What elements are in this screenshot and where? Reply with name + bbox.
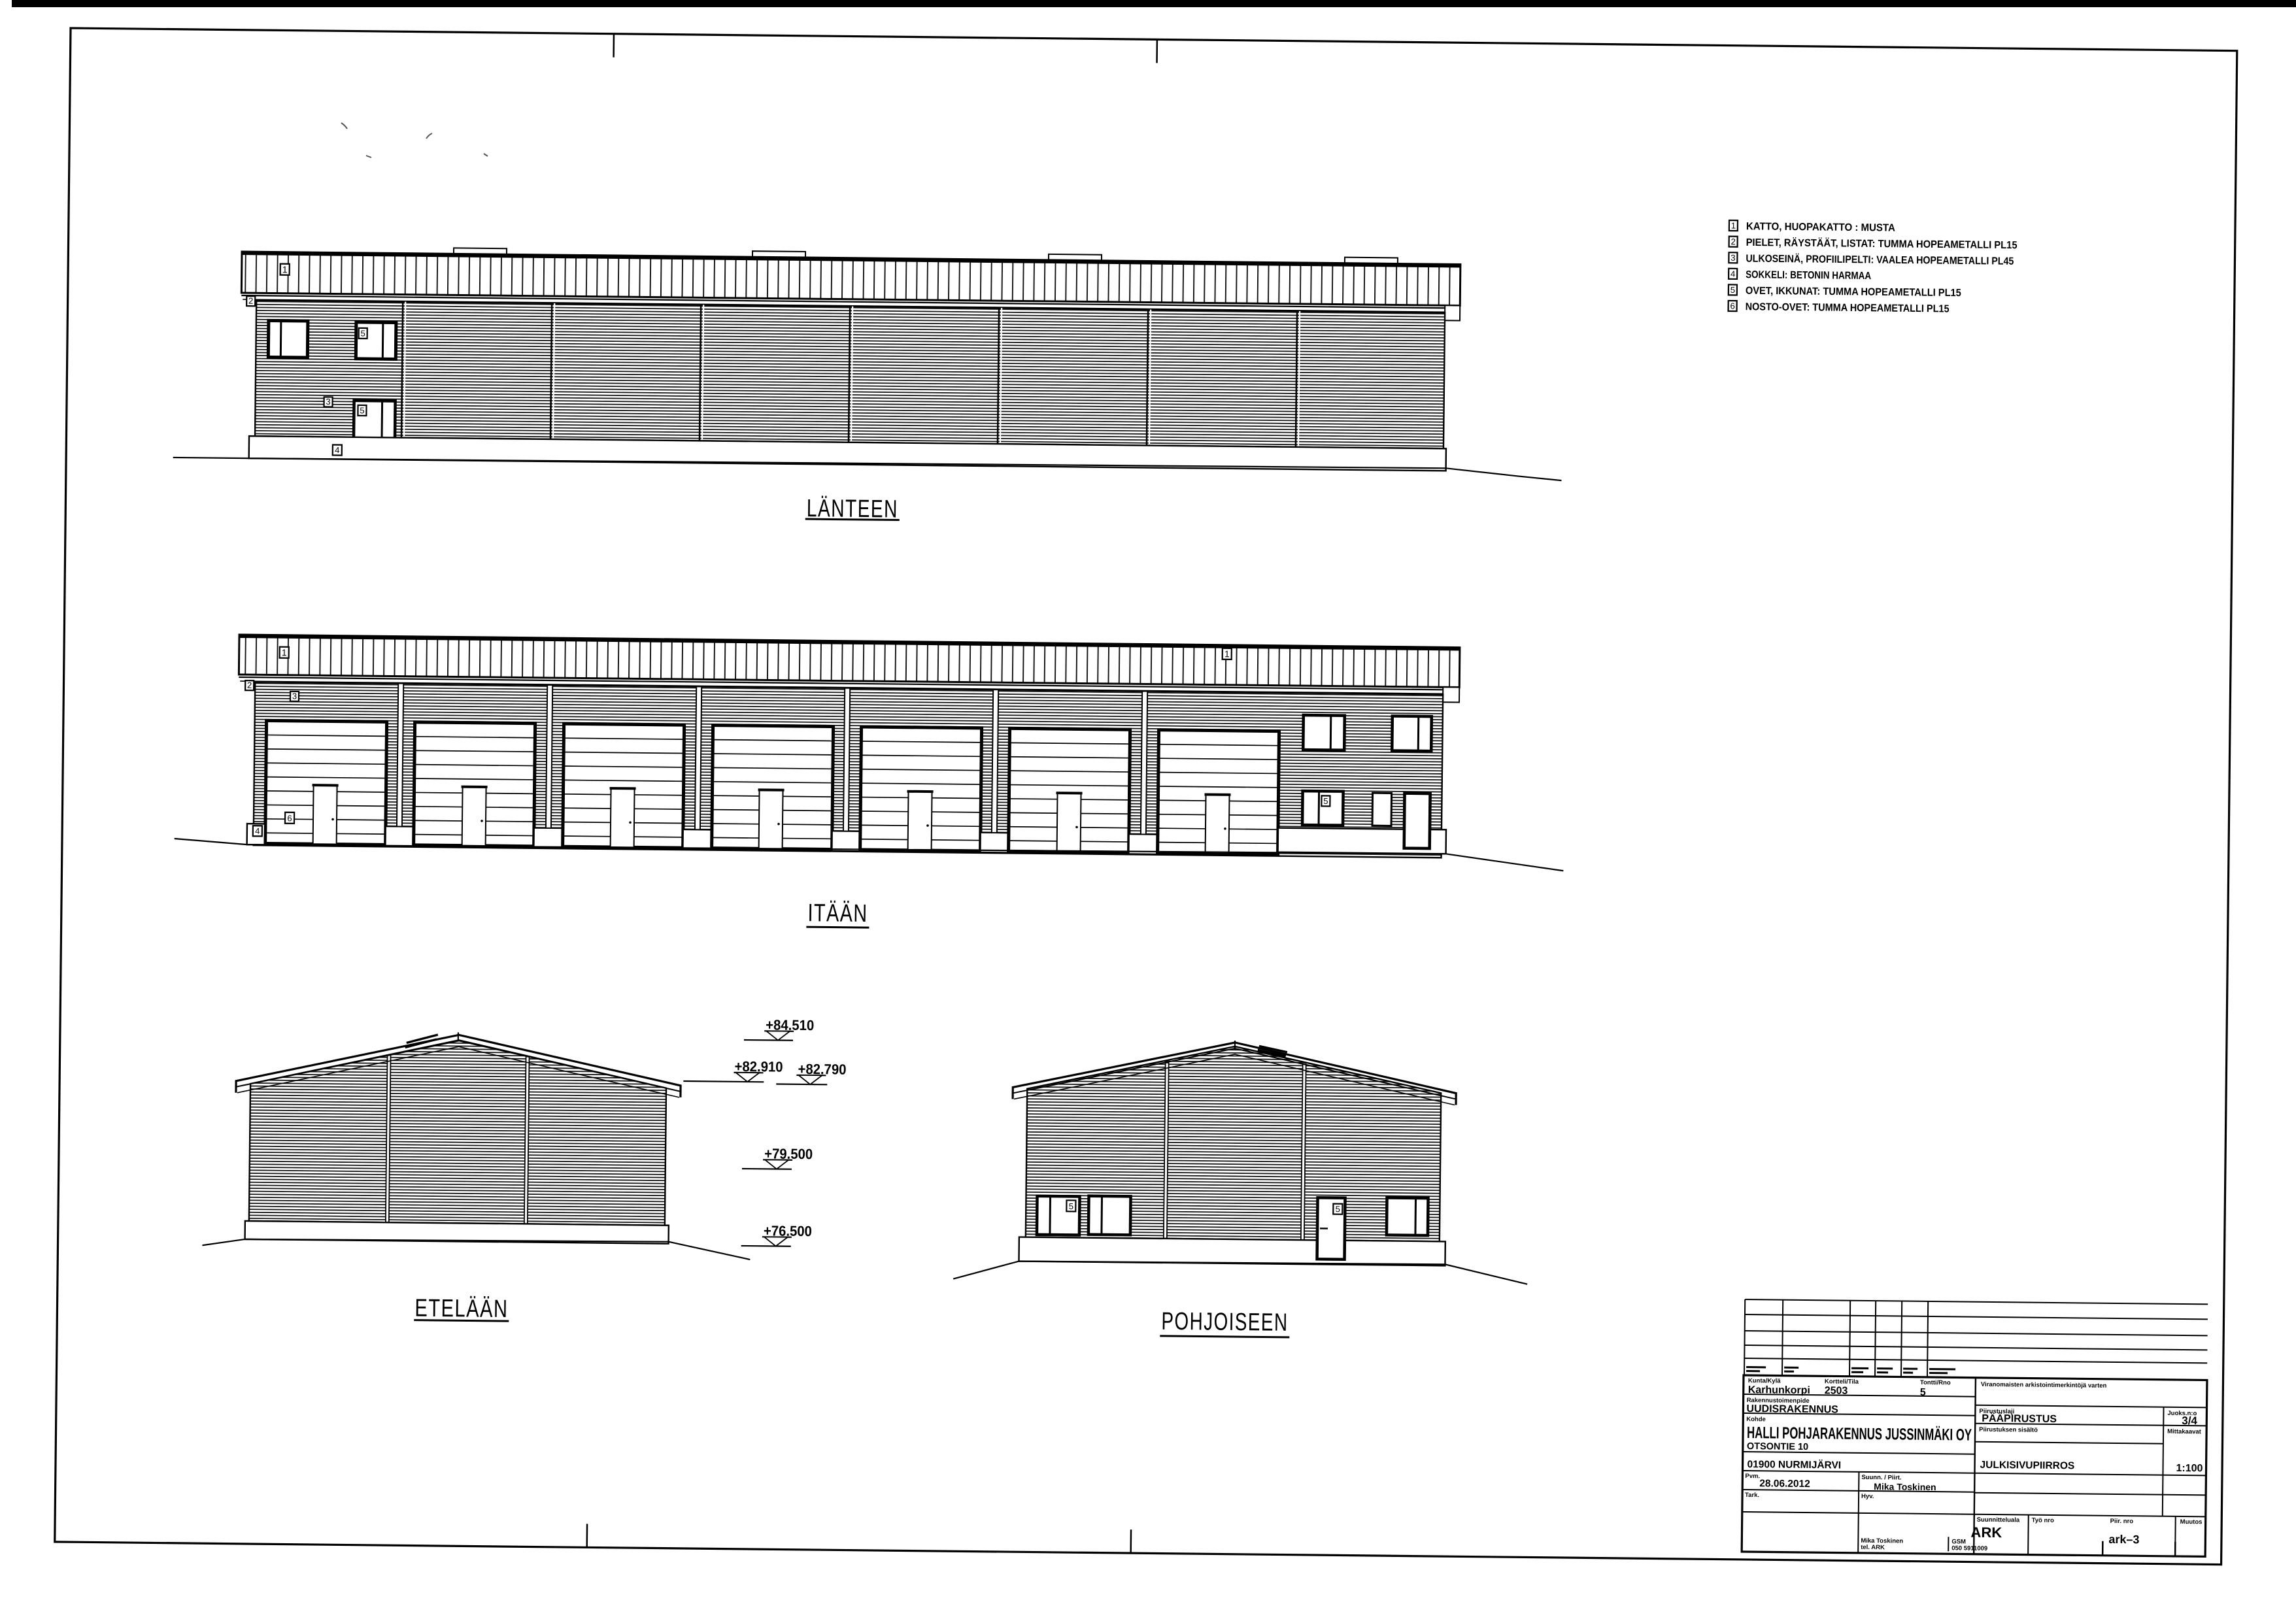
svg-text:Suunnitteluala: Suunnitteluala (1977, 1516, 2020, 1524)
svg-text:Muutos: Muutos (2180, 1518, 2203, 1526)
svg-text:5: 5 (1730, 285, 1735, 295)
svg-text:Karhunkorpi: Karhunkorpi (1748, 1384, 1810, 1396)
svg-text:Piirustuksen sisältö: Piirustuksen sisältö (1979, 1426, 2038, 1434)
svg-text:SOKKELI: BETONIN HARMAA: SOKKELI: BETONIN HARMAA (1746, 269, 1872, 282)
svg-text:Tark.: Tark. (1745, 1492, 1759, 1499)
svg-text:1: 1 (282, 647, 287, 658)
svg-text:ETELÄÄN: ETELÄÄN (414, 1295, 508, 1323)
svg-text:28.06.2012: 28.06.2012 (1759, 1478, 1810, 1490)
svg-text:OVET, IKKUNAT: TUMMA HOPEAMETA: OVET, IKKUNAT: TUMMA HOPEAMETALLI PL15 (1746, 286, 1961, 299)
svg-text:1: 1 (1731, 221, 1736, 231)
svg-text:2503: 2503 (1825, 1385, 1848, 1396)
svg-text:3: 3 (326, 397, 330, 407)
svg-text:Suunn. / Piirt.: Suunn. / Piirt. (1861, 1474, 1901, 1482)
svg-text:Mittakaavat: Mittakaavat (2167, 1428, 2202, 1436)
svg-text:2: 2 (1730, 237, 1735, 246)
svg-text:tel. ARK: tel. ARK (1861, 1544, 1885, 1551)
svg-text:3: 3 (292, 691, 297, 701)
svg-text:5: 5 (1323, 796, 1328, 806)
svg-text:01900 NURMIJÄRVI: 01900 NURMIJÄRVI (1747, 1459, 1841, 1471)
svg-text:ITÄÄN: ITÄÄN (807, 899, 868, 927)
svg-text:NOSTO-OVET: TUMMA HOPEAMETALLI: NOSTO-OVET: TUMMA HOPEAMETALLI PL15 (1746, 301, 1950, 314)
svg-text:ark–3: ark–3 (2108, 1533, 2139, 1546)
svg-text:ARK: ARK (1970, 1524, 2002, 1541)
svg-text:Pvm.: Pvm. (1745, 1473, 1760, 1480)
svg-text:5: 5 (1336, 1204, 1340, 1214)
svg-text:Hyv.: Hyv. (1861, 1493, 1874, 1500)
svg-text:Työ nro: Työ nro (2032, 1517, 2054, 1524)
svg-text:Kohde: Kohde (1746, 1416, 1766, 1423)
svg-text:POHJOISEEN: POHJOISEEN (1161, 1308, 1288, 1337)
svg-text:5: 5 (360, 405, 364, 415)
svg-text:5: 5 (361, 328, 365, 338)
svg-text:Piir. nro: Piir. nro (2110, 1518, 2134, 1525)
svg-text:KATTO, HUOPAKATTO : MUSTA: KATTO, HUOPAKATTO : MUSTA (1746, 221, 1896, 233)
svg-text:Viranomaisten arkistointimerki: Viranomaisten arkistointimerkintöjä vart… (1981, 1381, 2107, 1390)
svg-text:PÄÄPIRUSTUS: PÄÄPIRUSTUS (1982, 1412, 2057, 1425)
svg-text:1:100: 1:100 (2176, 1463, 2203, 1474)
svg-text:4: 4 (255, 826, 260, 836)
svg-text:4: 4 (335, 445, 339, 455)
svg-text:Mika Toskinen: Mika Toskinen (1874, 1481, 1936, 1492)
svg-text:4: 4 (1730, 269, 1735, 278)
svg-text:1: 1 (1224, 648, 1230, 659)
svg-text:6: 6 (287, 813, 292, 823)
svg-text:OTSONTIE 10: OTSONTIE 10 (1747, 1441, 1808, 1452)
svg-text:6: 6 (1730, 301, 1734, 311)
svg-text:5: 5 (1069, 1201, 1073, 1211)
svg-text:2: 2 (247, 680, 252, 690)
svg-text:3/4: 3/4 (2182, 1414, 2197, 1427)
svg-text:JULKISIVUPIIRROS: JULKISIVUPIIRROS (1980, 1460, 2074, 1472)
svg-text:050 5911009: 050 5911009 (1951, 1545, 1987, 1552)
svg-text:1: 1 (282, 264, 288, 275)
svg-text:Kunta/Kylä: Kunta/Kylä (1748, 1377, 1781, 1385)
svg-text:Tontti/Rno: Tontti/Rno (1920, 1379, 1951, 1386)
svg-text:3: 3 (1730, 253, 1735, 263)
svg-text:2: 2 (248, 296, 253, 306)
svg-text:5: 5 (1920, 1387, 1926, 1398)
svg-text:Kortteli/Tila: Kortteli/Tila (1825, 1378, 1859, 1386)
svg-text:UUDISRAKENNUS: UUDISRAKENNUS (1746, 1403, 1838, 1415)
